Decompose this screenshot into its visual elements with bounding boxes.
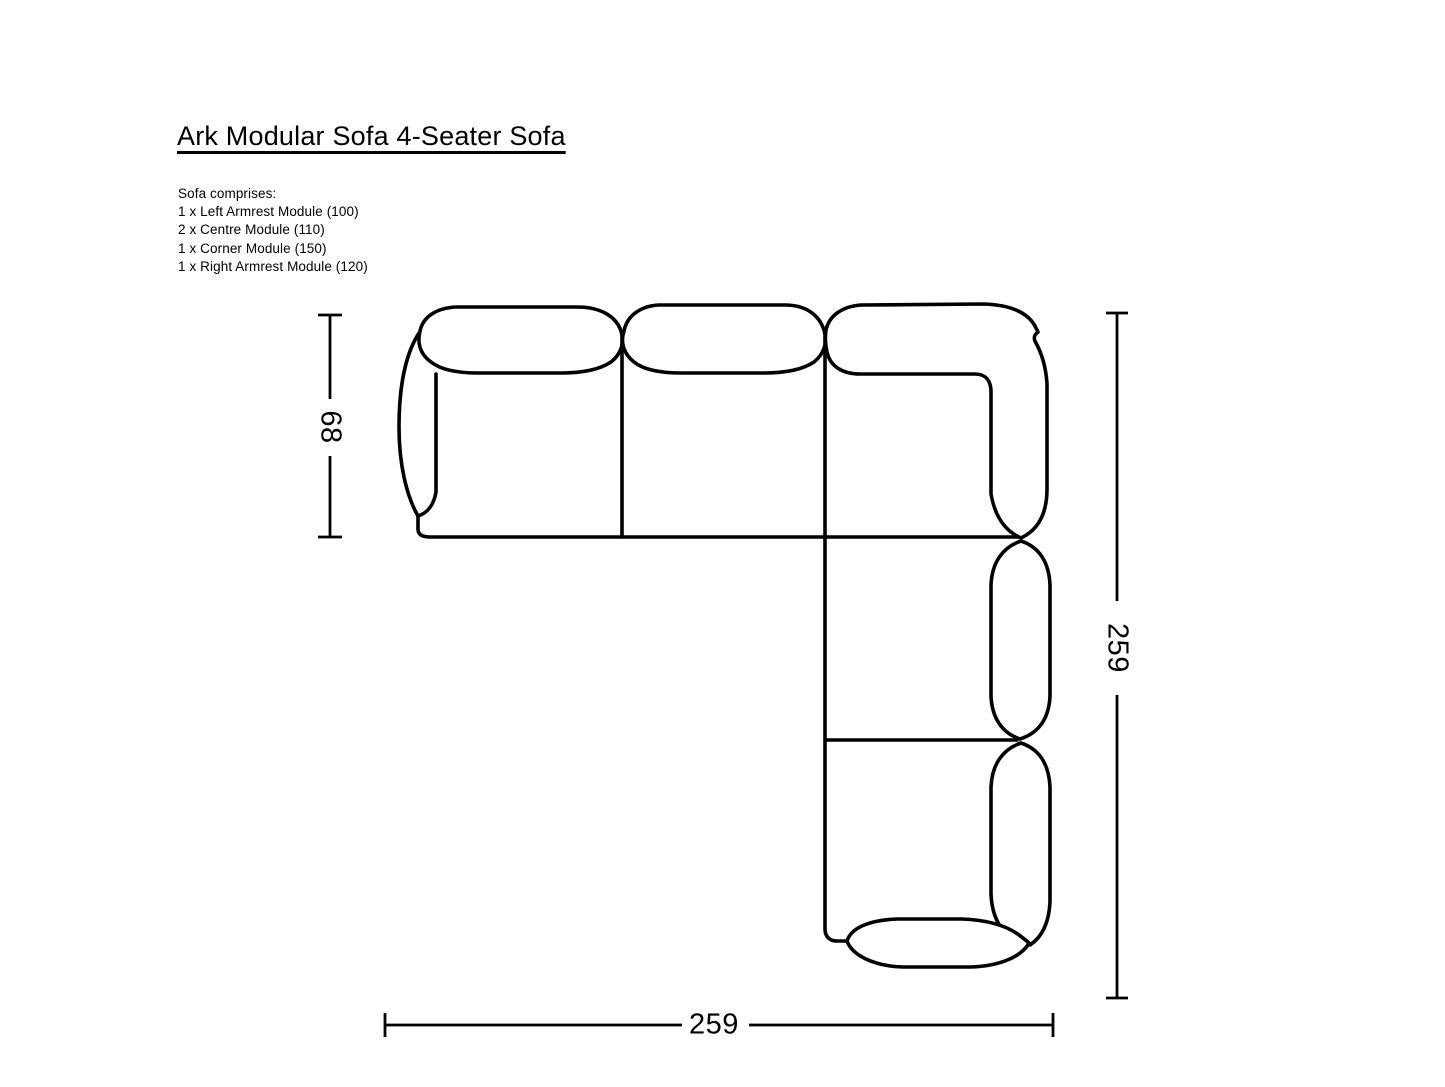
back-cushion-centre xyxy=(622,305,825,373)
dim-label-bottom-width: 259 xyxy=(689,1009,739,1042)
product-spec-sheet: Ark Modular Sofa 4-Seater Sofa Sofa comp… xyxy=(0,0,1445,1087)
dim-label-side-width: 259 xyxy=(1101,623,1134,673)
back-cushion-left xyxy=(419,307,623,373)
sofa-plan-drawing xyxy=(0,0,1445,1087)
seat-outline xyxy=(418,515,1018,537)
dim-label-depth: 68 xyxy=(314,410,347,443)
side-back-cushion-upper xyxy=(991,541,1050,739)
leg-left-edge xyxy=(825,332,846,941)
right-armrest-cushion xyxy=(847,919,1029,967)
corner-back-cushion xyxy=(825,304,1047,538)
side-back-cushion-lower xyxy=(991,743,1050,945)
